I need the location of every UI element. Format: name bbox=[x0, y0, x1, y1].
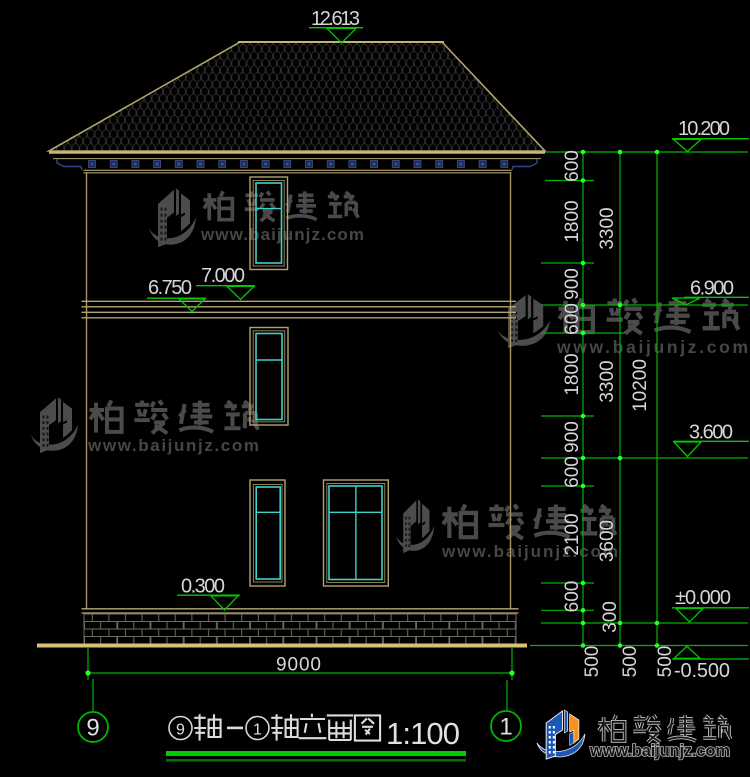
svg-text:1: 1 bbox=[499, 714, 512, 741]
svg-text:9: 9 bbox=[86, 715, 99, 742]
svg-text:-0.500: -0.500 bbox=[674, 660, 730, 682]
svg-text:600: 600 bbox=[562, 150, 583, 182]
svg-text:3300: 3300 bbox=[597, 360, 618, 402]
svg-text:3600: 3600 bbox=[597, 520, 618, 562]
svg-text:1: 1 bbox=[253, 722, 262, 739]
svg-text:1800: 1800 bbox=[562, 353, 583, 395]
svg-text:3300: 3300 bbox=[597, 207, 618, 249]
svg-text:9: 9 bbox=[176, 722, 185, 739]
svg-text:1800: 1800 bbox=[562, 200, 583, 242]
svg-text:7.000: 7.000 bbox=[201, 265, 245, 287]
svg-text:12.613: 12.613 bbox=[311, 8, 360, 30]
svg-text:600: 600 bbox=[562, 581, 583, 613]
svg-text:500: 500 bbox=[655, 646, 676, 678]
svg-text:500: 500 bbox=[620, 646, 641, 678]
svg-text:600: 600 bbox=[562, 303, 583, 335]
svg-text:300: 300 bbox=[600, 601, 621, 633]
svg-text:500: 500 bbox=[582, 646, 603, 678]
svg-text:900: 900 bbox=[562, 268, 583, 300]
svg-text:6.750: 6.750 bbox=[148, 277, 192, 299]
svg-text:2100: 2100 bbox=[562, 513, 583, 555]
svg-text:3.600: 3.600 bbox=[689, 422, 733, 444]
svg-text:www.baijunjz.com: www.baijunjz.com bbox=[589, 742, 730, 760]
svg-text:±0.000: ±0.000 bbox=[675, 587, 731, 609]
svg-text:1:100: 1:100 bbox=[386, 716, 460, 751]
svg-text:6.900: 6.900 bbox=[690, 278, 734, 300]
svg-text:600: 600 bbox=[562, 456, 583, 488]
svg-text:900: 900 bbox=[562, 421, 583, 453]
svg-text:0.300: 0.300 bbox=[181, 576, 225, 598]
svg-text:9000: 9000 bbox=[276, 655, 321, 676]
svg-text:10200: 10200 bbox=[630, 359, 651, 412]
svg-text:10.200: 10.200 bbox=[678, 118, 730, 140]
